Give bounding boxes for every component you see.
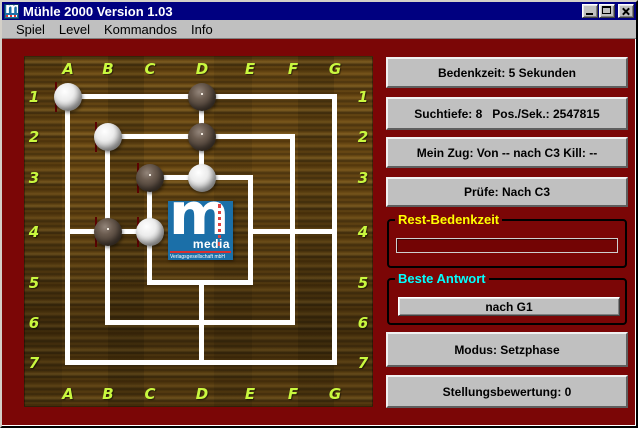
- game-board[interactable]: m media Verlagsgesellschaft mbH AABBCCDD…: [24, 56, 373, 407]
- menu-item-info[interactable]: Info: [185, 21, 219, 38]
- stone-c4-white[interactable]: [136, 218, 164, 246]
- column-label-g-bottom: G: [327, 385, 343, 403]
- row-label-5-left: 5: [26, 274, 42, 292]
- minimize-button[interactable]: [582, 4, 598, 18]
- maximize-button[interactable]: [599, 4, 615, 18]
- row-label-1-left: 1: [26, 88, 42, 106]
- media-logo-rule: [170, 251, 231, 253]
- app-icon: m: [4, 4, 19, 19]
- menu-item-level[interactable]: Level: [53, 21, 96, 38]
- window-title: Mühle 2000 Version 1.03: [23, 4, 581, 19]
- row-label-6-right: 6: [355, 314, 371, 332]
- stone-d3-white[interactable]: [188, 164, 216, 192]
- column-label-a-top: A: [60, 60, 76, 78]
- column-label-d-top: D: [194, 60, 210, 78]
- media-logo-name: media: [193, 237, 230, 251]
- stone-b2-white[interactable]: [94, 123, 122, 151]
- app-window: m Mühle 2000 Version 1.03 SpielLevelKomm…: [0, 0, 638, 428]
- minimize-icon: [586, 13, 593, 15]
- row-label-7-left: 7: [26, 354, 42, 372]
- title-bar: m Mühle 2000 Version 1.03: [2, 2, 636, 20]
- row-label-2-left: 2: [26, 128, 42, 146]
- row-label-1-right: 1: [355, 88, 371, 106]
- column-label-c-bottom: C: [142, 385, 158, 403]
- stone-a1-white[interactable]: [54, 83, 82, 111]
- column-label-a-bottom: A: [60, 385, 76, 403]
- column-label-b-top: B: [100, 60, 116, 78]
- status-stellungsbewertung: Stellungsbewertung: 0: [386, 375, 628, 408]
- board-line-e4-g4: [248, 229, 337, 234]
- column-label-c-top: C: [142, 60, 158, 78]
- stone-d2-dark[interactable]: [188, 123, 216, 151]
- row-label-4-left: 4: [26, 223, 42, 241]
- column-label-f-bottom: F: [285, 385, 301, 403]
- column-label-f-top: F: [285, 60, 301, 78]
- window-controls: [581, 4, 634, 18]
- column-label-e-top: E: [242, 60, 258, 78]
- media-logo: m media Verlagsgesellschaft mbH: [168, 201, 233, 260]
- rest-bedenkzeit-progressbar: [396, 238, 618, 253]
- column-label-e-bottom: E: [242, 385, 258, 403]
- row-label-4-right: 4: [355, 223, 371, 241]
- status-suchtiefe: Suchtiefe: 8 Pos./Sek.: 2547815: [386, 97, 628, 130]
- row-label-6-left: 6: [26, 314, 42, 332]
- menu-bar: SpielLevelKommandosInfo: [2, 20, 636, 39]
- status-pruefe: Prüfe: Nach C3: [386, 177, 628, 207]
- row-label-2-right: 2: [355, 128, 371, 146]
- beste-antwort-button[interactable]: nach G1: [398, 297, 620, 316]
- column-label-d-bottom: D: [194, 385, 210, 403]
- stone-d1-dark[interactable]: [188, 83, 216, 111]
- row-label-5-right: 5: [355, 274, 371, 292]
- column-label-g-top: G: [327, 60, 343, 78]
- status-modus: Modus: Setzphase: [386, 332, 628, 367]
- stone-b4-dark[interactable]: [94, 218, 122, 246]
- row-label-7-right: 7: [355, 354, 371, 372]
- menu-item-spiel[interactable]: Spiel: [10, 21, 51, 38]
- status-column: Bedenkzeit: 5 Sekunden Suchtiefe: 8 Pos.…: [386, 57, 628, 410]
- column-label-b-bottom: B: [100, 385, 116, 403]
- row-label-3-right: 3: [355, 169, 371, 187]
- maximize-icon: [602, 6, 611, 14]
- beste-antwort-label: Beste Antwort: [395, 271, 489, 286]
- close-button[interactable]: [618, 4, 634, 18]
- rest-bedenkzeit-label: Rest-Bedenkzeit: [395, 212, 502, 227]
- status-mein-zug: Mein Zug: Von -- nach C3 Kill: --: [386, 137, 628, 168]
- menu-item-kommandos[interactable]: Kommandos: [98, 21, 183, 38]
- app-icon-m: m: [5, 4, 19, 17]
- row-label-3-left: 3: [26, 169, 42, 187]
- board-line-d5-d7: [199, 280, 204, 365]
- media-logo-subtext: Verlagsgesellschaft mbH: [170, 254, 225, 260]
- stone-c3-dark[interactable]: [136, 164, 164, 192]
- group-beste-antwort: Beste Antwort nach G1: [387, 278, 627, 325]
- status-bedenkzeit: Bedenkzeit: 5 Sekunden: [386, 57, 628, 88]
- group-rest-bedenkzeit: Rest-Bedenkzeit: [387, 219, 627, 268]
